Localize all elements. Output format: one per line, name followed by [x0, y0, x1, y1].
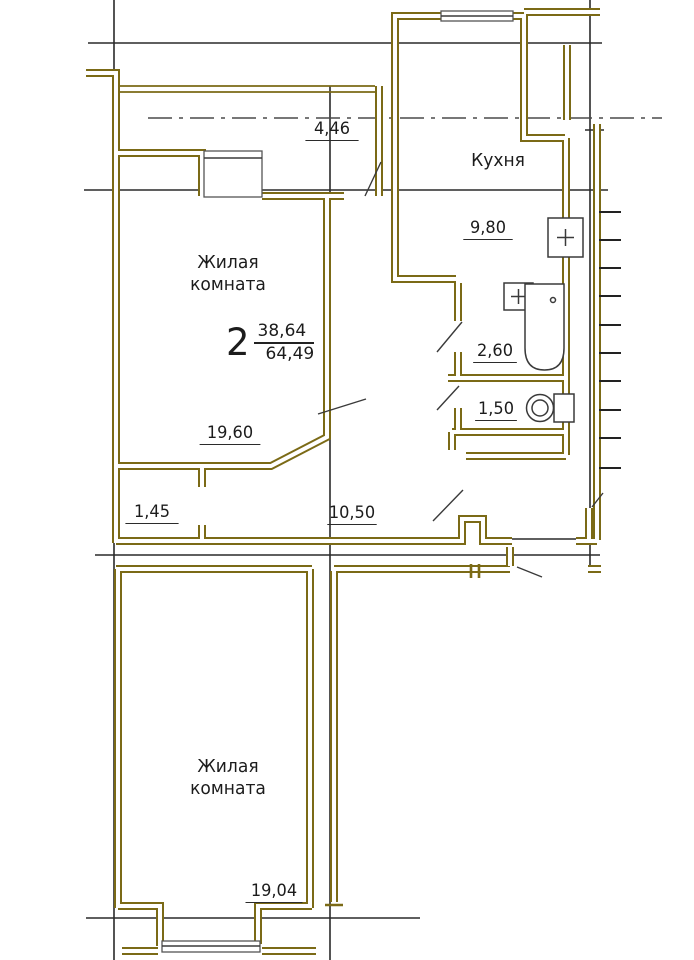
dim-bathroom-area: 2,60: [473, 342, 517, 363]
total-area-value: 64,49: [254, 344, 315, 364]
dim-hallway-area: 10,50: [327, 504, 376, 525]
reference-lines: [84, 0, 608, 960]
dim-living-top-area: 19,60: [200, 424, 261, 445]
dim-living-bottom-area: 19,04: [246, 882, 303, 903]
loggia-window: [204, 151, 262, 197]
room-label-living-bottom: Жилая комната: [169, 756, 287, 800]
dim-loggia-area: 4,46: [305, 120, 358, 141]
shaft-tick-marks: [599, 212, 621, 468]
dim-entry-area: 1,45: [125, 503, 178, 524]
bathtub-icon: [525, 284, 564, 370]
apartment-number: 2: [226, 323, 250, 363]
loggia-rail: [120, 86, 375, 92]
dim-kitchen-area: 9,80: [463, 219, 512, 240]
room-label-kitchen: Кухня: [460, 150, 536, 172]
room-label-living-top: Жилая комната: [169, 252, 287, 296]
bottom-room-window: [162, 941, 260, 952]
toilet-icon: [527, 394, 575, 422]
stove-icon: [548, 218, 583, 257]
area-fraction: 38,64 64,49: [254, 322, 315, 364]
wall-stubs: [325, 564, 479, 905]
apartment-info: 2 38,64 64,49: [226, 322, 314, 364]
floorplan-drawing: [0, 0, 694, 960]
living-area-value: 38,64: [254, 322, 315, 344]
kitchen-bay-window: [441, 11, 513, 21]
dim-wc-area: 1,50: [475, 400, 517, 421]
floorplan-page: Жилая комната Жилая комната Кухня 2 38,6…: [0, 0, 694, 960]
